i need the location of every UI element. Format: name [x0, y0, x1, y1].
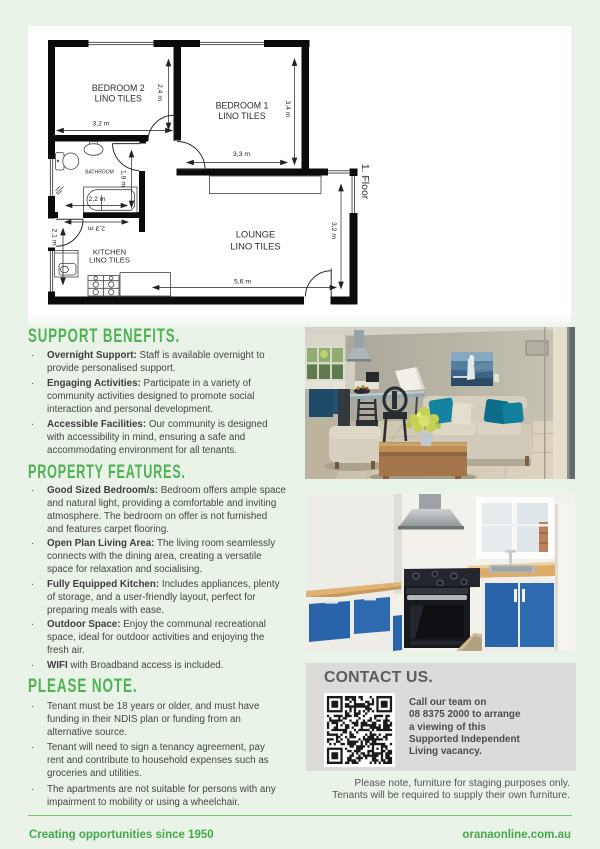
svg-text:3,4 m: 3,4 m [284, 101, 291, 118]
svg-text:2,3 m: 2,3 m [88, 225, 105, 232]
svg-text:3,3 m: 3,3 m [233, 151, 250, 158]
svg-text:2,1 m: 2,1 m [50, 229, 57, 246]
svg-text:LOUNGELINO TILES: LOUNGELINO TILES [230, 229, 280, 252]
svg-text:BATHROOM: BATHROOM [85, 170, 114, 176]
svg-text:BEDROOM 2LINO TILES: BEDROOM 2LINO TILES [92, 83, 145, 103]
svg-text:KITCHENLINO TILES: KITCHENLINO TILES [89, 247, 130, 264]
svg-text:BEDROOM 1LINO TILES: BEDROOM 1LINO TILES [216, 101, 269, 121]
svg-text:2,2 m: 2,2 m [89, 196, 106, 203]
svg-text:3,2 m: 3,2 m [330, 222, 337, 239]
svg-text:5,6 m: 5,6 m [234, 279, 251, 286]
svg-text:1,9 m: 1,9 m [119, 170, 126, 187]
svg-text:2,4 m: 2,4 m [156, 84, 163, 101]
svg-text:3,2 m: 3,2 m [93, 121, 110, 128]
svg-text:1. Floor: 1. Floor [359, 164, 371, 200]
